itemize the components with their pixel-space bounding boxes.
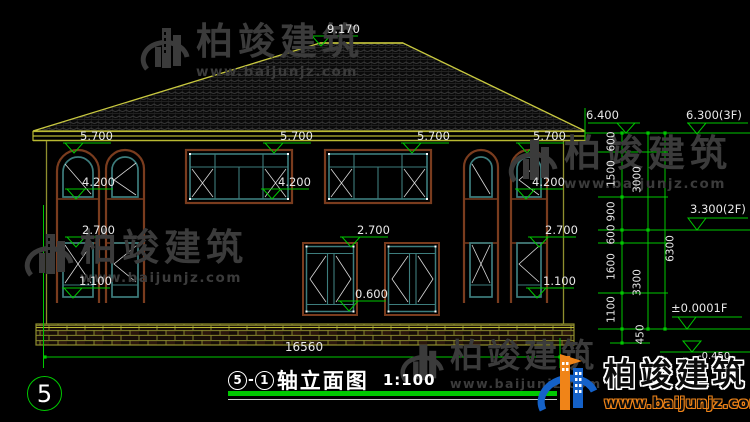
elevation-label-1f-lintel: 2.700 [545,224,578,236]
brand-name: 柏竣建筑 [604,356,750,392]
chain-dim: 3300 [633,263,644,303]
chain-dim: 6300 [666,229,677,269]
axis-bubble-start: 5 [228,371,247,390]
elevation-label-1f-lintel: 2.700 [357,224,390,236]
elevation-marker [340,301,358,311]
drawing-scale: 1:100 [383,371,436,389]
elevation-marker [263,189,281,199]
axis-separator: - [248,372,254,388]
elevation-label-ridge: 9.170 [327,23,360,35]
elevation-label-floor2: 3.300(2F) [690,203,746,215]
elevation-label-1f-sill: 1.100 [543,275,576,287]
axis-bubble-end: 1 [255,371,274,390]
elevation-label-1f-lintel: 2.700 [82,224,115,236]
elevation-marker [265,143,283,153]
window-arched-3 [464,150,498,303]
title-underline-thin [228,399,557,400]
chain-dim: 3000 [633,160,644,200]
elevation-label-eave: 5.700 [417,130,450,142]
watermark-url: www.baijunjz.com [564,176,732,192]
elevation-label-eave: 5.700 [80,130,113,142]
elevation-label-eave-right: 6.400 [586,109,619,121]
elevation-marker [403,143,421,153]
watermark: 柏竣建筑 www.baijunjz.com [22,228,248,286]
baijun-logo-icon [138,22,192,80]
elevation-label-2f-window: 4.200 [82,176,115,188]
total-width-dimension: 16560 [280,341,328,353]
cad-elevation-sheet: 柏竣建筑 www.baijunjz.com 柏竣建筑 www.baijunjz.… [0,0,750,422]
chain-dim: 1500 [607,154,618,194]
elevation-label-2f-window: 4.200 [278,176,311,188]
brand-logo: 柏竣建筑 www.baijunjz.com [530,348,750,420]
elevation-label-2f-window: 4.200 [532,176,565,188]
elevation-label-eave: 5.700 [533,130,566,142]
watermark-url: www.baijunjz.com [196,64,364,80]
elevation-marker [688,218,706,230]
chain-dim: 1600 [607,247,618,287]
elevation-marker [678,317,696,329]
elevation-label-eave: 5.700 [280,130,313,142]
title-underline [228,391,557,396]
sheet-number-bubble: 5 [27,376,62,411]
elevation-label-floor3: 6.300(3F) [686,109,742,121]
baijun-logo-icon [22,228,76,286]
elevation-label-center-sill: 0.600 [355,288,388,300]
watermark-brand: 柏竣建筑 [564,134,732,174]
brand-url: www.baijunjz.com [604,394,750,412]
baijun-logo-icon [530,348,602,420]
elevation-label-1f-sill: 1.100 [79,275,112,287]
elevation-label-floor1: ±0.0001F [671,302,728,314]
elevation-marker [530,237,548,247]
chain-dim: 1100 [607,290,618,330]
